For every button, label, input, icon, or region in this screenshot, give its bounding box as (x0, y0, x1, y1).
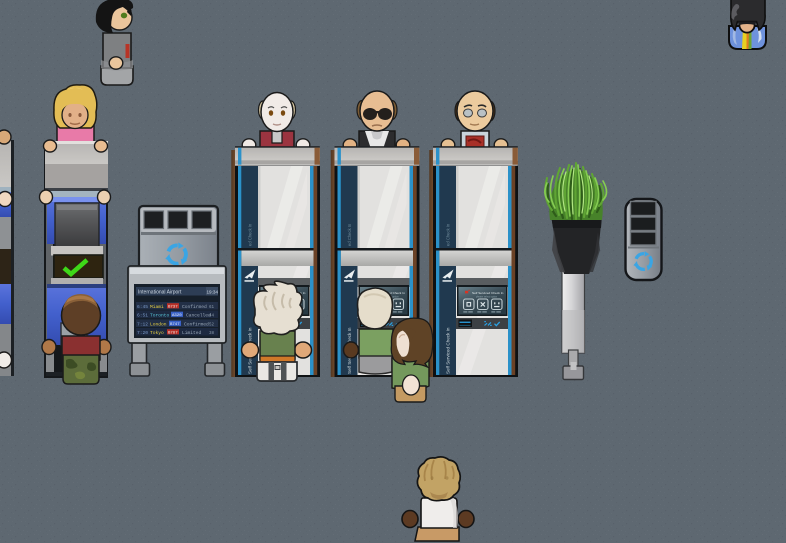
svg-text:Limited: Limited (182, 330, 202, 336)
svg-text:44: 44 (209, 314, 215, 318)
svg-text:Toronto: Toronto (150, 312, 170, 318)
svg-text:ed Check In: ed Check In (347, 223, 352, 246)
svg-text:A320: A320 (172, 314, 182, 318)
svg-text:Confirmed: Confirmed (182, 304, 207, 310)
svg-text:Self Serviced Check In: Self Serviced Check In (446, 327, 451, 374)
svg-text:61: 61 (209, 306, 215, 310)
svg-text:38: 38 (209, 332, 215, 336)
svg-text:ed Check In: ed Check In (446, 223, 451, 246)
svg-text:7:12: 7:12 (137, 321, 148, 327)
svg-text:52: 52 (209, 323, 215, 327)
svg-text:7:20: 7:20 (137, 330, 148, 336)
svg-text:please select option: please select option (476, 295, 498, 298)
svg-text:London: London (150, 321, 167, 327)
svg-text:Tokyo: Tokyo (150, 330, 164, 336)
svg-text:ed Check In: ed Check In (248, 223, 253, 246)
svg-text:B747: B747 (170, 323, 180, 327)
svg-text:B737: B737 (168, 306, 178, 310)
svg-text:B787: B787 (168, 332, 178, 336)
svg-text:International Airport: International Airport (138, 290, 182, 296)
svg-text:6:51: 6:51 (137, 312, 148, 318)
svg-text:Cancelled: Cancelled (186, 312, 211, 318)
svg-text:Confirmed: Confirmed (184, 321, 209, 327)
svg-text:Self Serviced Check In: Self Serviced Check In (472, 291, 504, 295)
svg-text:Miami: Miami (150, 304, 164, 310)
svg-text:6:45: 6:45 (137, 304, 148, 310)
svg-text:19:34: 19:34 (207, 290, 219, 295)
